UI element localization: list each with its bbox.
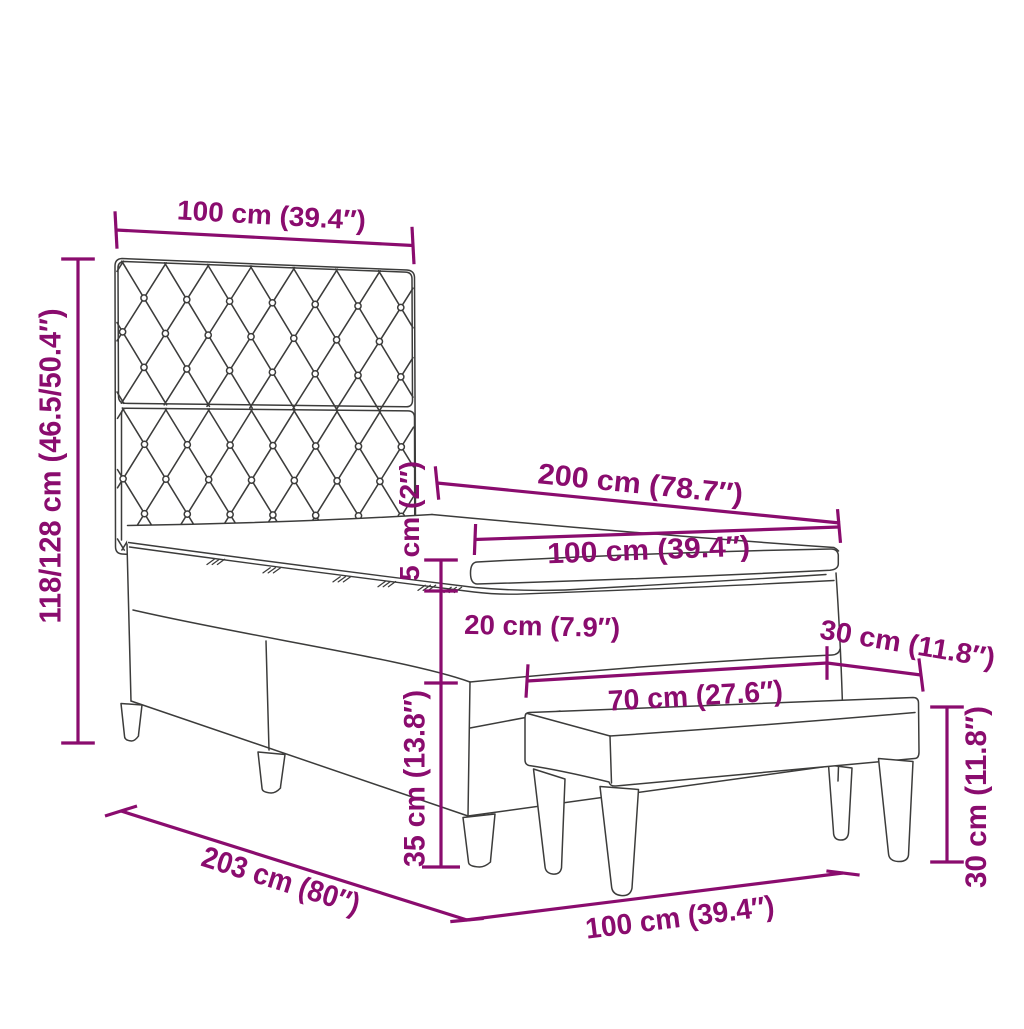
svg-text:20 cm (7.9″): 20 cm (7.9″)	[464, 609, 621, 643]
svg-text:5 cm (2″): 5 cm (2″)	[394, 461, 425, 581]
svg-text:118/128 cm (46.5/50.4″): 118/128 cm (46.5/50.4″)	[34, 309, 68, 624]
svg-text:35 cm (13.8″): 35 cm (13.8″)	[399, 690, 432, 867]
svg-text:30 cm (11.8″): 30 cm (11.8″)	[960, 706, 993, 888]
